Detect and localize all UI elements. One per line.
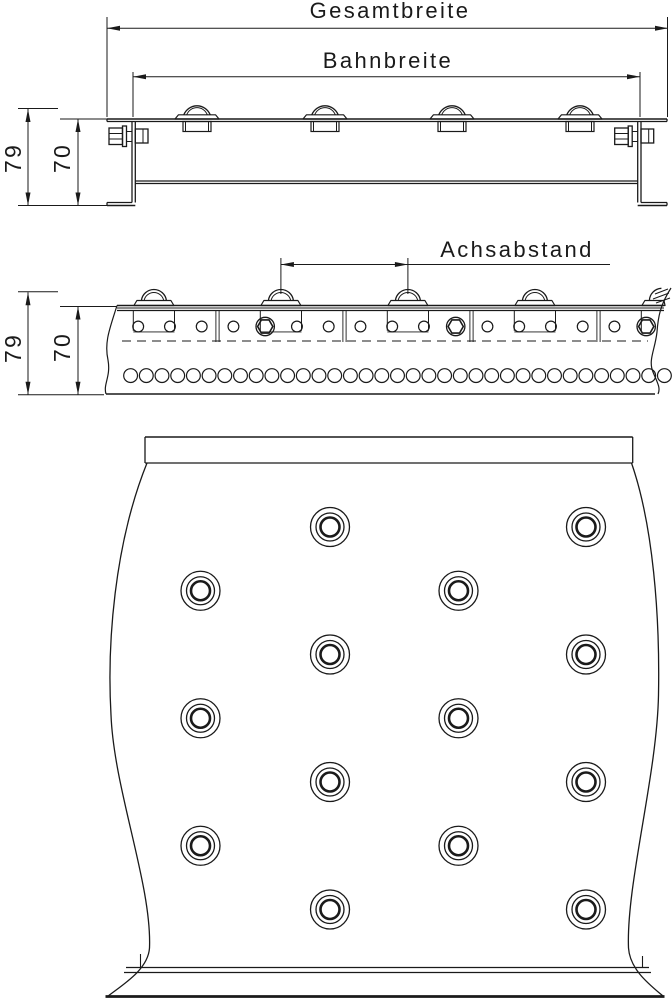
dim-label-bahnbreite: Bahnbreite [323, 48, 453, 73]
dim-label-height-track-side: 70 [49, 332, 75, 362]
dim-label-achsabstand: Achsabstand [440, 237, 594, 262]
dim-label-height-total-side: 79 [0, 333, 26, 363]
technical-drawing-page: Gesamtbreite Bahnbreite Achsabstand 79 7… [0, 0, 672, 1000]
drawing-background [0, 0, 672, 1000]
dim-label-gesamtbreite: Gesamtbreite [310, 0, 471, 23]
dim-label-height-track-front: 70 [49, 143, 75, 173]
roller-track-technical-drawing: Gesamtbreite Bahnbreite Achsabstand 79 7… [0, 0, 672, 1000]
dim-label-height-total-front: 79 [0, 143, 26, 173]
